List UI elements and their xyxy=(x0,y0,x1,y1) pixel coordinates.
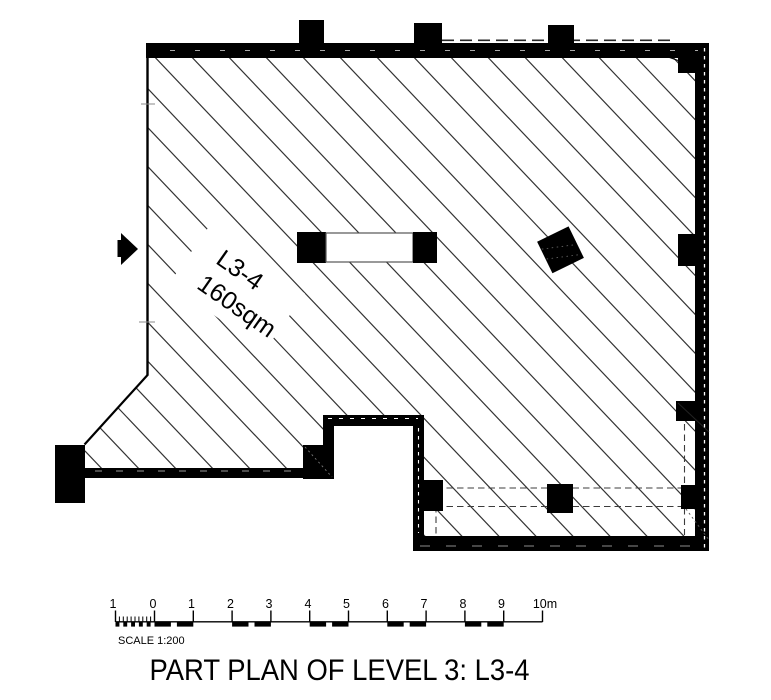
svg-text:3: 3 xyxy=(266,597,273,611)
svg-text:5: 5 xyxy=(343,597,350,611)
svg-text:6: 6 xyxy=(382,597,389,611)
svg-text:1: 1 xyxy=(188,597,195,611)
svg-text:2: 2 xyxy=(227,597,234,611)
svg-text:9: 9 xyxy=(498,597,505,611)
svg-text:7: 7 xyxy=(421,597,428,611)
svg-text:1: 1 xyxy=(110,597,117,611)
svg-text:PART PLAN OF LEVEL 3: L3-4: PART PLAN OF LEVEL 3: L3-4 xyxy=(150,654,530,687)
svg-text:SCALE 1:200: SCALE 1:200 xyxy=(118,635,185,647)
svg-text:8: 8 xyxy=(460,597,467,611)
svg-text:10m: 10m xyxy=(533,597,557,611)
svg-text:4: 4 xyxy=(305,597,312,611)
svg-text:0: 0 xyxy=(150,597,157,611)
